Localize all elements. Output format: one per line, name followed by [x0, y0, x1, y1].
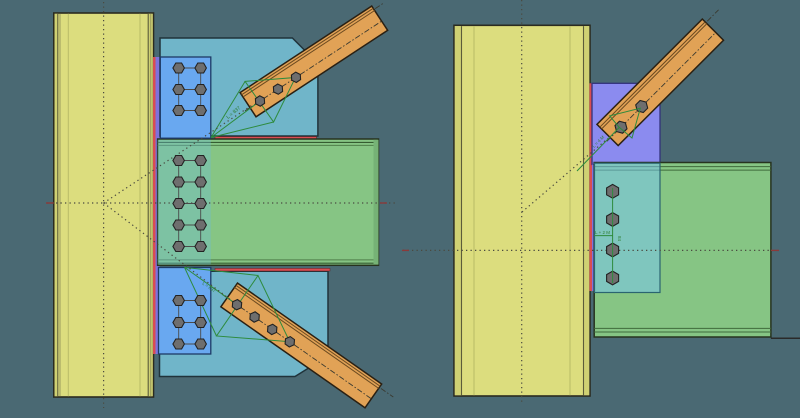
svg-text:L + 2 M: L + 2 M [595, 230, 610, 235]
svg-text:84: 84 [617, 236, 622, 242]
